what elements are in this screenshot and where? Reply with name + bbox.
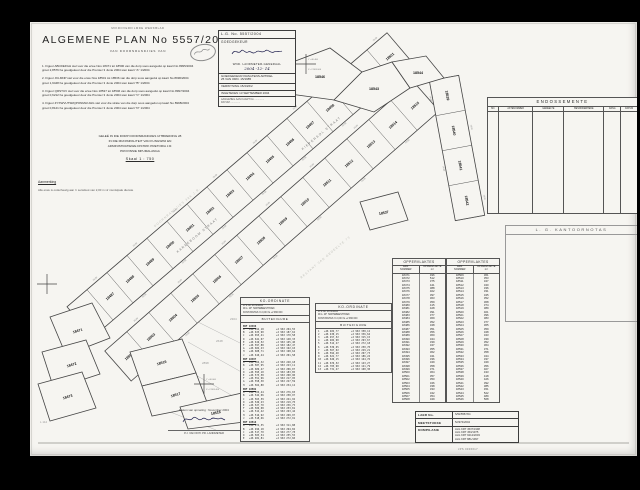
survey-date-line: Datum van opmeting : November 2004 [168,408,240,412]
coordinate-row: J+46 518,66+2 963 272,91 [243,417,307,420]
areas-row: 18546568 [447,398,499,401]
lot-dimension-label: 18,00 [442,166,445,172]
filing-row: LAER No.S/W/5557/04 [416,412,518,419]
endorsements-column [604,112,621,213]
endorsements-body [488,112,637,213]
areas-column-headers: ERF NOMMEROPPERVLAKTE m² [393,266,445,274]
coordinate-row: H+46 562,80+2 963 234,12 [243,384,307,387]
areas-row: 18508349 [393,398,445,401]
coordinates-title: KO-ORDINATE [316,304,391,311]
coordinates-body: 1+46 402,77+2 963 358,122+46 430,15+2 96… [316,329,391,373]
lot-dimension-label: 18,00 [469,125,472,131]
surveyor-caption: P.J. VAN WYK PR. LANDMETER [168,430,240,435]
filing-label: MEETSTUKKE [416,419,453,425]
y-coordinate-cell: +46 610,44 [249,354,276,357]
endorsements-column-header: NO. [488,107,499,111]
areas-col-erf: ERF NOMMER [447,266,473,273]
area-value-cell: 568 [473,398,500,401]
endorsements-column [564,112,604,213]
filing-label: LAER No. [416,412,453,418]
filing-foot-note: JPS 0306617 [458,448,478,451]
filing-value: ALG KRT 4537/1998ALG KRT 453/1975ALG KRT… [453,427,518,442]
y-coordinate-cell: +46 731,27 [324,368,351,371]
erf-number-cell: 18508 [393,398,419,401]
coordinates-title: KO-ORDINATE [241,298,309,305]
endorsements-column-header: DATUM [621,107,637,111]
coordinate-row: 13+46 731,27+2 963 100,30 [318,368,389,371]
erf-number: 18544 [413,71,423,75]
farm-name-label: RESTANT VAN GEDEELTE 73 [299,235,351,279]
x-coordinate-cell: +2 963 272,60 [276,437,307,440]
coordinates-body: ERF 18486A+46 612,18+2 963 204,55B+46 63… [241,323,309,442]
areas-column-headers: ERF NOMMEROPPERVLAKTE m² [447,266,499,274]
remark-title: Aanmerking [38,180,56,184]
clause-line-2: 25 VAN ORD. 15/1985 [221,78,293,82]
erf-number: 18546 [315,75,325,79]
filing-label: KOMPILASIE [416,427,453,442]
filing-row: MEETSTUKKE5/2974/2004 [416,419,518,426]
endorsements-column-header: RANG [604,107,621,111]
area-value-cell: 349 [419,398,446,401]
office-notes-box: L. G. KANTOORNOTAS [505,225,637,322]
coordinates-table-2: KO-ORDINATELYS No. 2974/2004W.G. 29° HAR… [315,303,392,373]
filing-value-line: S/W/5557/04 [455,413,516,416]
scanned-plan-page: 23042648289827482394DOORNRANDJIES 386 J.… [30,22,637,456]
coordinates-table-1: KO-ORDINATELYS No. 2974/2004W.G. 29° HAR… [240,297,310,442]
open-parcel-number: 2898 [202,361,209,365]
filing-box: LAER No.S/W/5557/04MEETSTUKKE5/2974/2004… [415,411,519,443]
x-coordinate-cell: +2 963 201,58 [276,354,307,357]
lg-number: L.G. No. 5557/2004 [219,31,295,39]
filing-value-line: 5/2974/2004 [455,421,516,424]
filing-value: 5/2974/2004 [453,419,518,425]
filing-value: S/W/5557/04 [453,412,518,418]
location-statement: GELEË IN DIE DORP DOORNRANDJIES UITBREID… [50,134,230,154]
endorsements-column-header: GEDEELTE [533,107,564,111]
areas-body-right: 1850936118510353185113471851234018513336… [447,274,499,402]
endorsements-column [533,112,564,213]
x-coordinate-cell: +2 963 234,12 [276,384,307,387]
erf-number: 18543 [369,87,379,91]
coordinates-info-line: KONSTANTES Yo 0,00 Xo +2 960 000 [243,312,307,315]
stamp-scribble-icon [190,43,214,60]
scale-note: Skaal 1 : 750 [50,157,230,161]
endorsements-title: ENDOSSEMENTE [488,98,637,107]
grid-y-label: Y +46 400 [308,59,319,61]
attachment-note: AANGEHEG AAN KAART No .............. DAT… [219,97,295,105]
reference-line: VERWYSING 15/4/26/2 [219,84,295,91]
approved-label: GOEDGEKEUR [219,40,295,44]
areas-table-left: OPPERVLAKTESERF NOMMEROPPERVLAKTE m²1847… [392,258,446,403]
grid-x-label: X +2 963 000 [308,69,322,71]
grid-x-label: X +2 963 400 [206,389,220,391]
coordinate-row: J+46 610,44+2 963 201,58 [243,354,307,357]
scanned-document-viewport: { "colors": {"page_bg": "#f6f5f1", "ink"… [0,0,640,490]
areas-table-right: OPPERVLAKTESERF NOMMEROPPERVLAKTE m²1850… [446,258,500,403]
endorsements-column [499,112,533,213]
open-parcel-number: 2304 [230,317,237,321]
surveyor-signature-block: Datum van opmeting : November 2004 P.J. … [168,408,240,435]
surveyor-signature-mark [179,413,229,425]
lot-dimension-label: 18,00 [482,195,485,201]
registered-line: INGETEKEN 13 SEPTEMBER 2004 [219,91,295,98]
open-parcel-number: 2648 [216,339,223,343]
endorsements-column-header: AKTENOMMER [499,107,533,111]
x-coordinate-cell: +2 963 272,91 [276,417,307,420]
endorsements-column [621,112,637,213]
approval-signature-area: GOEDGEKEUR WND. LANDMETER-GENERAAL 2004 … [219,39,295,74]
location-line: PROVINSIE MPUMALANGA [50,149,230,154]
coordinates-info: LYS No. 2974/2004W.G. 29° HARTEBEESTHOEK… [241,305,309,316]
approval-box: L.G. No. 5557/2004 GOEDGEKEUR WND. LANDM… [218,30,296,107]
filing-row: KOMPILASIEALG KRT 4537/1998ALG KRT 453/1… [416,427,518,442]
areas-col-erf: ERF NOMMER [393,266,419,273]
endorsements-table: ENDOSSEMENTE NO.AKTENOMMERGEDEELTEBESOND… [487,97,637,214]
areas-body-left: 1847149618472512184733751847444118475388… [393,274,445,402]
coordinates-info-line: KONSTANTES Yo 0,00 Xo +2 960 000 [318,318,389,321]
areas-col-opp: OPPERVLAKTE m² [419,266,446,273]
attachment-line-2: DATUM .............. [221,101,293,104]
coordinate-row: E+46 481,81+2 963 272,60 [243,437,307,440]
x-coordinate-cell: +2 963 100,30 [351,368,389,371]
erf-number-cell: 18546 [447,398,473,401]
coordinates-info: LYS No. 2974/2004W.G. 29° HARTEBEESTHOEK… [316,311,391,322]
filing-value-line: ALG KRT 881/1997 [455,438,516,441]
y-coordinate-cell: +46 518,66 [249,417,276,420]
areas-col-opp: OPPERVLAKTE m² [473,266,500,273]
approval-clause: GOEDGEKEUR KRAGTENS ARTIKEL 25 VAN ORD. … [219,74,295,84]
endorsements-column [488,112,499,213]
y-coordinate-cell: +46 562,80 [249,384,276,387]
y-coordinate-cell: +46 481,81 [249,437,276,440]
grid-y-label: Y +46 600 [206,379,217,381]
microfilm-note: MIKROVERFILMDE WERKBLAD [38,26,238,30]
approval-date-stamp: 2004 -12- 14 [219,66,295,71]
signature-mark [229,46,285,57]
corner-reference-note: L 112 [40,420,47,424]
office-notes-title: L. G. KANTOORNOTAS [506,226,637,235]
remark-text: Alle erwe is onderhewig aan 'n serwituut… [38,188,193,192]
endorsements-column-header: BESONDERHEDE [564,107,604,111]
